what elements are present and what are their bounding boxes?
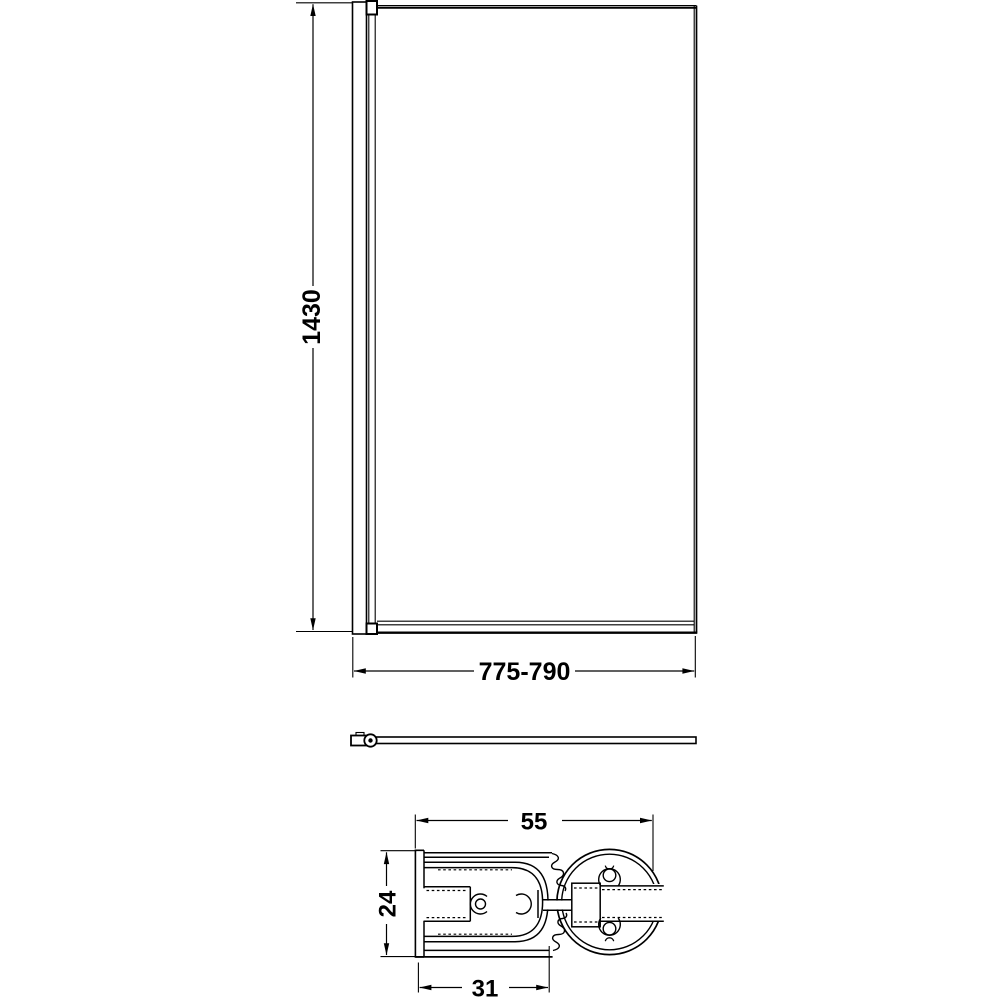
clamp-clip-left <box>470 894 487 914</box>
width-dimension-label: 775-790 <box>479 658 571 686</box>
pivot-pin <box>368 738 372 742</box>
bath-screen-drawing: 1430 775-790 <box>0 0 1000 1000</box>
dimension-section-depth-24: 24 <box>375 851 420 957</box>
interlock-teeth-bottom <box>553 913 567 951</box>
dimension-width: 775-790 <box>353 636 696 686</box>
front-elevation-view <box>353 1 698 634</box>
clamp-clip-right <box>516 890 538 918</box>
top-cap <box>367 1 378 15</box>
wall-channel-profile <box>415 850 566 957</box>
section-width-label: 55 <box>521 809 548 836</box>
connecting-tongue <box>543 900 572 911</box>
section-depth-label: 24 <box>375 890 402 917</box>
channel-width-label: 31 <box>472 976 499 1000</box>
technical-drawing-canvas: 1430 775-790 <box>0 0 1000 1000</box>
dimension-channel-width-31: 31 <box>418 946 549 1000</box>
clamp-boss <box>572 883 600 927</box>
bottom-cap <box>367 624 378 635</box>
wall-profile-bar <box>353 2 367 634</box>
dimension-height: 1430 <box>296 3 353 632</box>
height-dimension-label: 1430 <box>298 289 326 345</box>
plan-view <box>351 733 696 747</box>
glass-panel <box>367 6 698 633</box>
interlock-teeth-top <box>552 854 566 892</box>
profile-cross-section: 55 24 31 <box>375 809 668 1000</box>
glass-panel-plan <box>376 737 696 744</box>
round-pivot-profile <box>557 849 667 954</box>
